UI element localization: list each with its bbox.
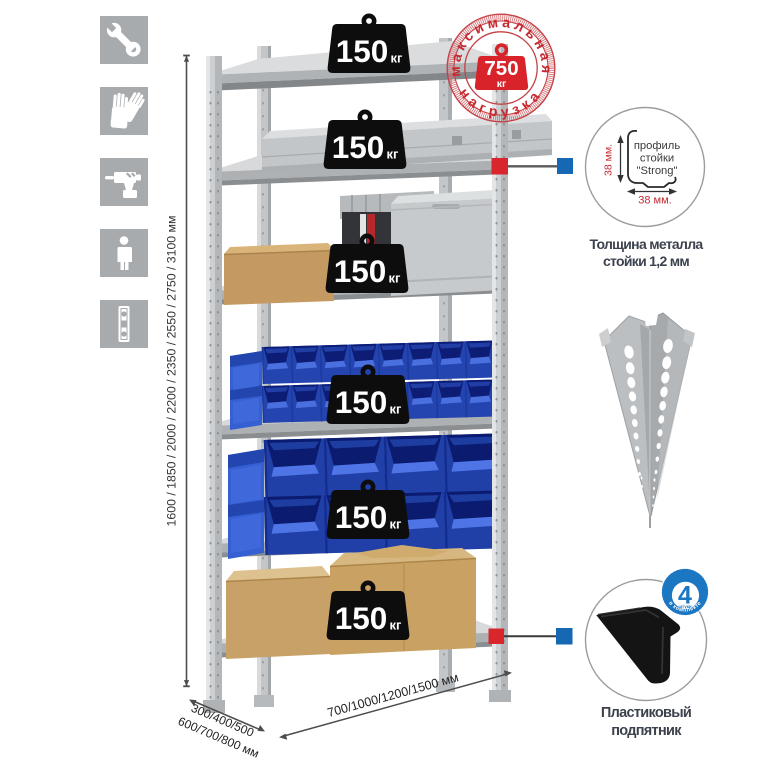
- svg-text:стойки: стойки: [640, 153, 674, 165]
- svg-text:профиль: профиль: [634, 140, 680, 152]
- svg-text:38 мм.: 38 мм.: [638, 195, 671, 207]
- svg-text:1600 / 1850 / 2000 / 2200 / 23: 1600 / 1850 / 2000 / 2200 / 2350 / 2550 …: [165, 216, 179, 527]
- svg-text:"Strong": "Strong": [637, 165, 678, 177]
- svg-text:подпятник: подпятник: [611, 723, 682, 739]
- svg-text:Толщина металла: Толщина металла: [590, 236, 704, 252]
- svg-text:кг: кг: [497, 78, 507, 90]
- svg-text:750: 750: [484, 57, 518, 80]
- svg-text:стойки 1,2 мм: стойки 1,2 мм: [603, 253, 689, 269]
- svg-text:Пластиковый: Пластиковый: [601, 705, 691, 721]
- svg-text:38 мм.: 38 мм.: [603, 144, 615, 176]
